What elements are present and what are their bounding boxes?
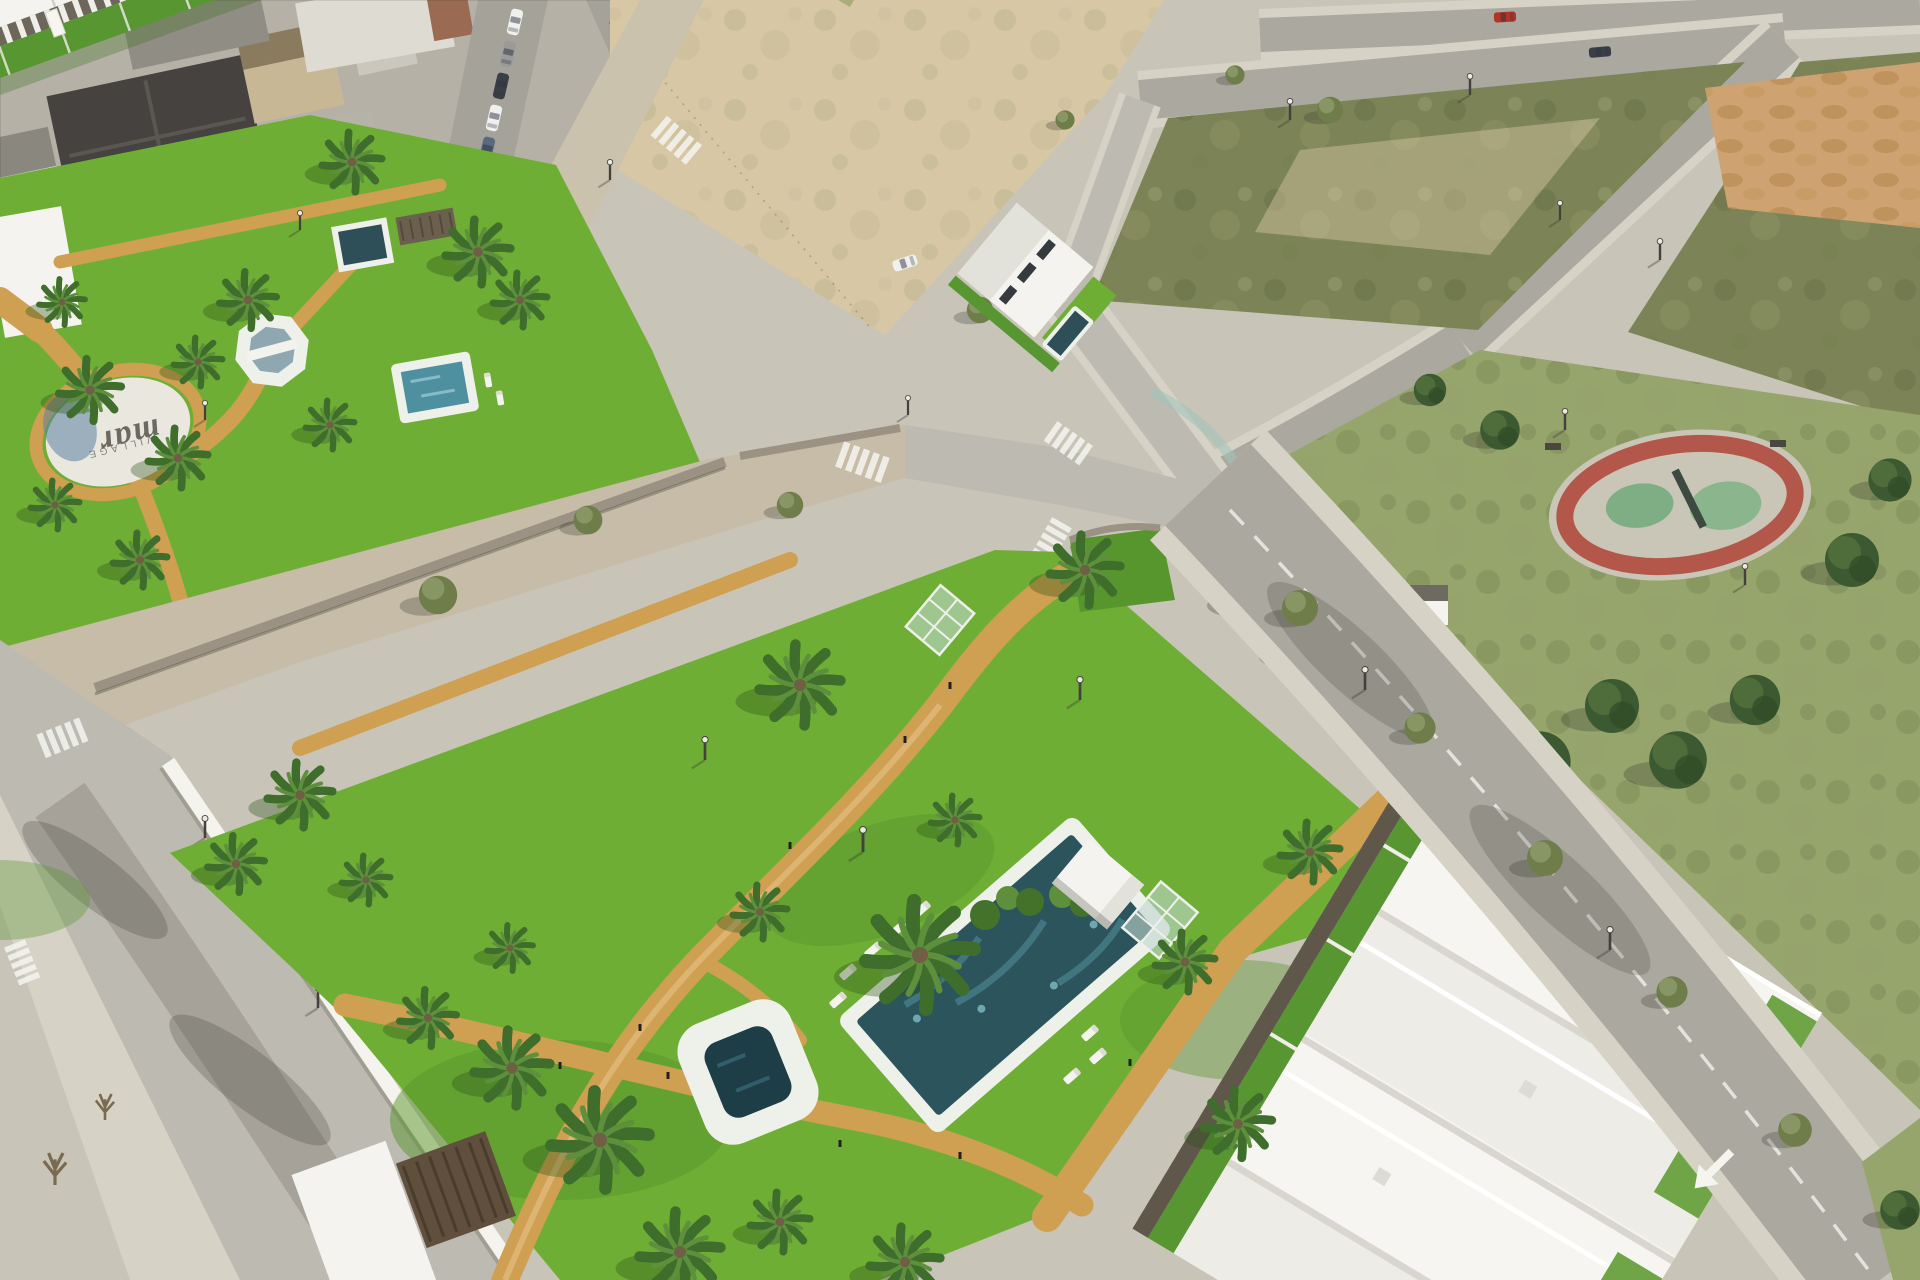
park-bench	[1545, 443, 1561, 450]
park-bench	[1770, 440, 1786, 447]
aerial-render-canvas: mar VILLAGE	[0, 0, 1920, 1280]
aerial-render-root: mar VILLAGE	[0, 0, 1920, 1280]
car	[1589, 46, 1612, 58]
red-car	[1494, 11, 1517, 22]
